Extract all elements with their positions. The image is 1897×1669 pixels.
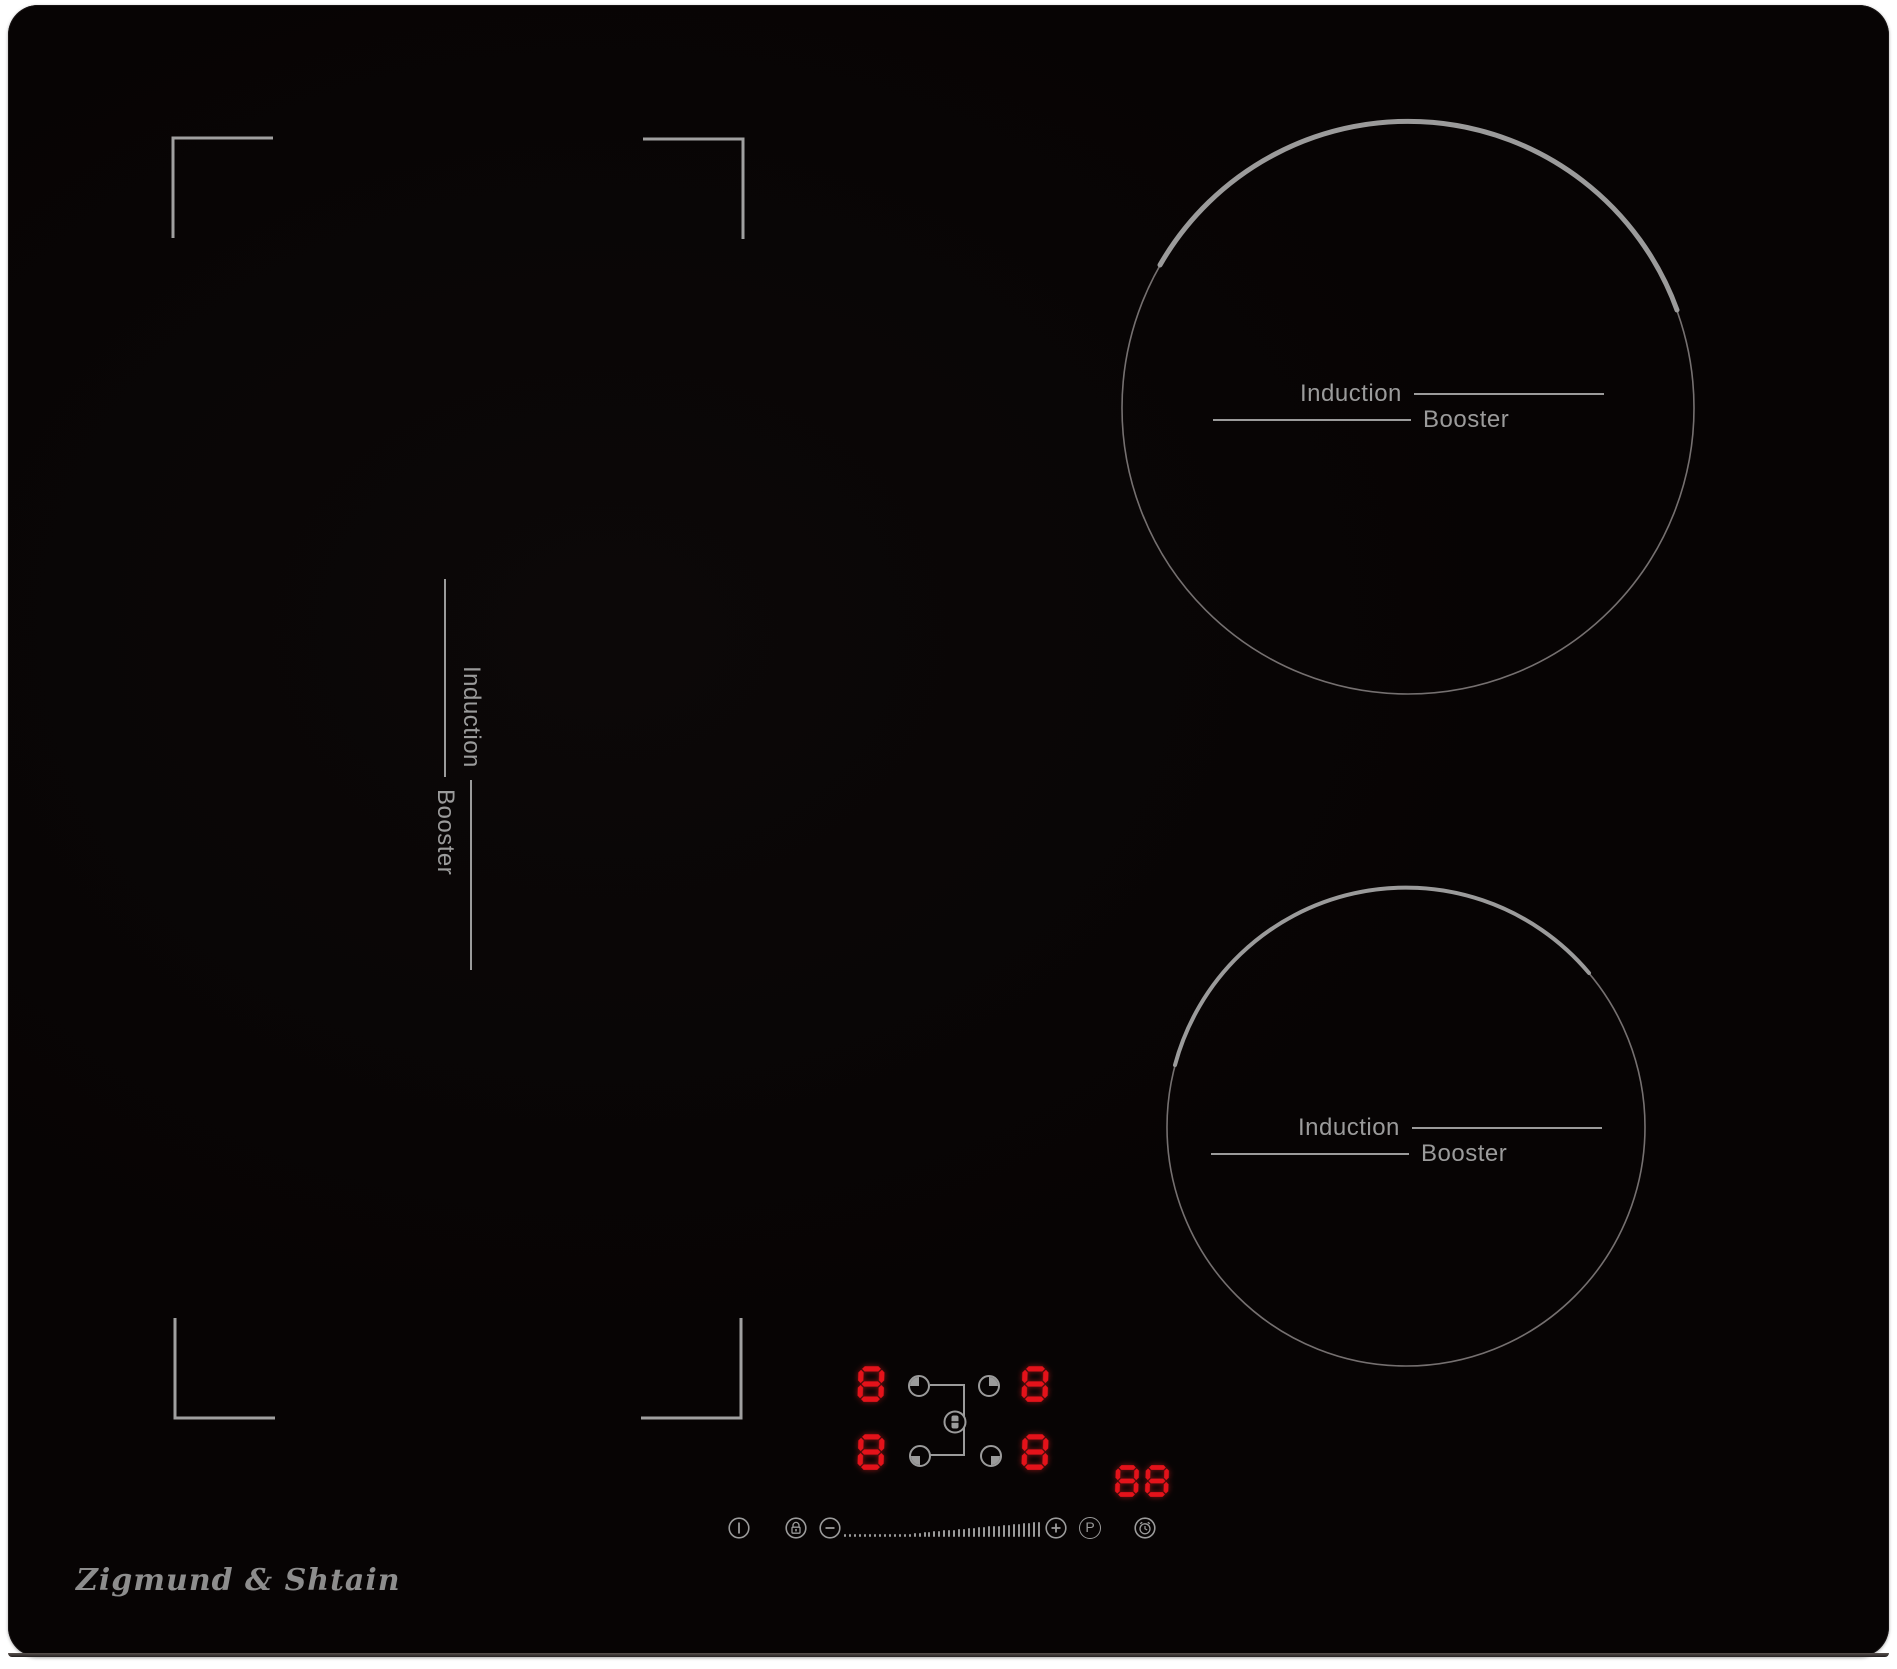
zone-label-row-booster: Booster xyxy=(1210,407,1606,433)
product-image: Induction Booster Induction Booster Indu… xyxy=(0,0,1897,1669)
seven-segment-digit xyxy=(1019,1366,1050,1402)
slider-tick[interactable] xyxy=(933,1531,935,1537)
power-display-rear-right xyxy=(1019,1366,1050,1402)
power-slider[interactable] xyxy=(844,1521,1040,1537)
segment-F xyxy=(1145,1468,1150,1480)
segment-C xyxy=(878,1453,884,1466)
segment-E xyxy=(1145,1482,1150,1494)
segment-A xyxy=(862,1366,881,1371)
segment-D xyxy=(1025,1397,1044,1402)
induction-text: Induction xyxy=(1298,1115,1400,1141)
slider-tick[interactable] xyxy=(1018,1524,1020,1537)
zone-label-row-booster: Booster xyxy=(432,576,458,972)
segment-B xyxy=(1164,1468,1169,1480)
segment-C xyxy=(1163,1482,1168,1494)
segment-G xyxy=(1148,1479,1165,1484)
slider-tick[interactable] xyxy=(874,1534,876,1537)
timer-display xyxy=(1113,1465,1170,1497)
segment-C xyxy=(878,1385,884,1398)
segment-E xyxy=(1021,1385,1027,1398)
segment-D xyxy=(861,1465,880,1470)
zone-select-front-right[interactable] xyxy=(979,1444,1003,1468)
segment-E xyxy=(1115,1482,1120,1494)
brand-logo: Zigmund & Shtain xyxy=(76,1563,401,1598)
label-rule-line xyxy=(1213,419,1411,421)
segment-D xyxy=(1118,1492,1135,1497)
slider-tick[interactable] xyxy=(1008,1525,1010,1537)
segment-B xyxy=(1043,1370,1049,1383)
booster-text: Booster xyxy=(432,789,458,875)
segment-D xyxy=(1148,1492,1165,1497)
zone-label-rear-right: Induction Booster xyxy=(1210,381,1606,433)
booster-text: Booster xyxy=(1421,1141,1507,1167)
booster-text: Booster xyxy=(1423,407,1509,433)
zone-label-row-booster: Booster xyxy=(1208,1141,1604,1167)
segment-G xyxy=(861,1449,880,1454)
zone-label-row-induction: Induction xyxy=(1208,1115,1604,1141)
segment-B xyxy=(879,1438,885,1451)
slider-tick[interactable] xyxy=(889,1534,891,1537)
minus-button[interactable] xyxy=(819,1517,841,1539)
slider-tick[interactable] xyxy=(864,1534,866,1537)
segment-F xyxy=(858,1370,864,1383)
seven-segment-digit xyxy=(1019,1434,1050,1470)
segment-C xyxy=(1042,1385,1048,1398)
slider-tick[interactable] xyxy=(849,1534,851,1537)
segment-F xyxy=(1022,1438,1028,1451)
slider-tick[interactable] xyxy=(968,1528,970,1537)
segment-B xyxy=(1043,1438,1049,1451)
segment-G xyxy=(861,1381,880,1386)
slider-tick[interactable] xyxy=(963,1529,965,1537)
slider-tick[interactable] xyxy=(924,1532,926,1537)
bridge-zones-button[interactable] xyxy=(942,1409,968,1435)
slider-tick[interactable] xyxy=(914,1533,916,1537)
padlock-keyhole-icon xyxy=(795,1529,797,1531)
label-rule-line xyxy=(1211,1153,1409,1155)
power-display-front-right xyxy=(1019,1434,1050,1470)
slider-tick[interactable] xyxy=(869,1534,871,1537)
padlock-shackle-icon xyxy=(793,1522,799,1527)
segment-E xyxy=(857,1385,863,1398)
segment-B xyxy=(879,1370,885,1383)
zone-circle-rear-right-highlight xyxy=(1160,121,1677,310)
label-rule-line xyxy=(470,780,472,970)
alarm-clock-hands-icon xyxy=(1145,1526,1147,1530)
seven-segment-digit xyxy=(855,1434,886,1470)
slider-tick[interactable] xyxy=(1038,1522,1040,1537)
flex-zone-bracket-bottom-right xyxy=(641,1318,741,1418)
slider-tick[interactable] xyxy=(1023,1523,1025,1537)
slider-tick[interactable] xyxy=(884,1534,886,1537)
induction-text: Induction xyxy=(458,666,484,768)
boost-p-button[interactable]: P xyxy=(1079,1517,1101,1539)
slider-tick[interactable] xyxy=(998,1526,1000,1537)
zone-select-rear-left[interactable] xyxy=(907,1374,931,1398)
zone-label-row-induction: Induction xyxy=(458,576,484,972)
flex-zone-bracket-bottom-left xyxy=(175,1318,275,1418)
zone-select-front-left[interactable] xyxy=(908,1444,932,1468)
slider-tick[interactable] xyxy=(993,1526,995,1537)
seven-segment-digit xyxy=(1143,1465,1170,1497)
seven-segment-digit xyxy=(855,1366,886,1402)
segment-E xyxy=(1021,1453,1027,1466)
flex-zone-bracket-top-left xyxy=(173,138,273,238)
slider-tick[interactable] xyxy=(953,1530,955,1537)
segment-A xyxy=(1119,1465,1136,1470)
slider-tick[interactable] xyxy=(904,1534,906,1537)
glass-bottom-bevel xyxy=(8,1653,1889,1657)
segment-G xyxy=(1118,1479,1135,1484)
power-button[interactable] xyxy=(728,1517,750,1539)
slider-tick[interactable] xyxy=(1003,1525,1005,1537)
seven-segment-digit xyxy=(1113,1465,1140,1497)
slider-tick[interactable] xyxy=(988,1526,990,1537)
slider-tick[interactable] xyxy=(899,1534,901,1537)
slider-tick[interactable] xyxy=(859,1534,861,1537)
slider-tick[interactable] xyxy=(948,1530,950,1537)
segment-F xyxy=(1115,1468,1120,1480)
zone-select-rear-right[interactable] xyxy=(977,1374,1001,1398)
segment-E xyxy=(857,1453,863,1466)
slider-tick[interactable] xyxy=(1028,1523,1030,1537)
segment-D xyxy=(1025,1465,1044,1470)
slider-tick[interactable] xyxy=(928,1532,930,1537)
power-display-rear-left xyxy=(855,1366,886,1402)
slider-tick[interactable] xyxy=(919,1533,921,1537)
timer-button[interactable] xyxy=(1134,1517,1156,1539)
induction-text: Induction xyxy=(1300,381,1402,407)
segment-D xyxy=(861,1397,880,1402)
slider-tick[interactable] xyxy=(943,1530,945,1537)
label-rule-line xyxy=(444,579,446,777)
segment-B xyxy=(1134,1468,1139,1480)
label-rule-line xyxy=(1412,1127,1602,1129)
zone-label-front-right: Induction Booster xyxy=(1208,1115,1604,1167)
plus-button[interactable] xyxy=(1045,1517,1067,1539)
slider-tick[interactable] xyxy=(894,1534,896,1537)
cooktop-glass-panel: Induction Booster Induction Booster Indu… xyxy=(8,5,1889,1657)
slider-tick[interactable] xyxy=(1013,1524,1015,1537)
segment-G xyxy=(1025,1381,1044,1386)
zone-label-flex-left: Induction Booster xyxy=(432,576,484,972)
slider-tick[interactable] xyxy=(879,1534,881,1537)
slider-tick[interactable] xyxy=(973,1528,975,1537)
segment-A xyxy=(1026,1366,1045,1371)
slider-tick[interactable] xyxy=(909,1534,911,1537)
button-ring xyxy=(786,1518,806,1538)
segment-A xyxy=(1149,1465,1166,1470)
segment-F xyxy=(858,1438,864,1451)
power-display-front-left xyxy=(855,1434,886,1470)
child-lock-button[interactable] xyxy=(785,1517,807,1539)
slider-tick[interactable] xyxy=(958,1529,960,1537)
segment-A xyxy=(1026,1434,1045,1439)
segment-G xyxy=(1025,1449,1044,1454)
segment-A xyxy=(862,1434,881,1439)
zone-label-row-induction: Induction xyxy=(1210,381,1606,407)
slider-tick[interactable] xyxy=(938,1531,940,1537)
segment-C xyxy=(1133,1482,1138,1494)
flex-zone-bracket-top-right xyxy=(643,139,743,239)
segment-C xyxy=(1042,1453,1048,1466)
slider-tick[interactable] xyxy=(983,1527,985,1537)
slider-tick[interactable] xyxy=(844,1534,846,1537)
zone-circle-front-right-highlight xyxy=(1175,888,1589,1065)
label-rule-line xyxy=(1414,393,1604,395)
segment-F xyxy=(1022,1370,1028,1383)
slider-tick[interactable] xyxy=(1033,1522,1035,1537)
slider-tick[interactable] xyxy=(854,1534,856,1537)
slider-tick[interactable] xyxy=(978,1527,980,1537)
